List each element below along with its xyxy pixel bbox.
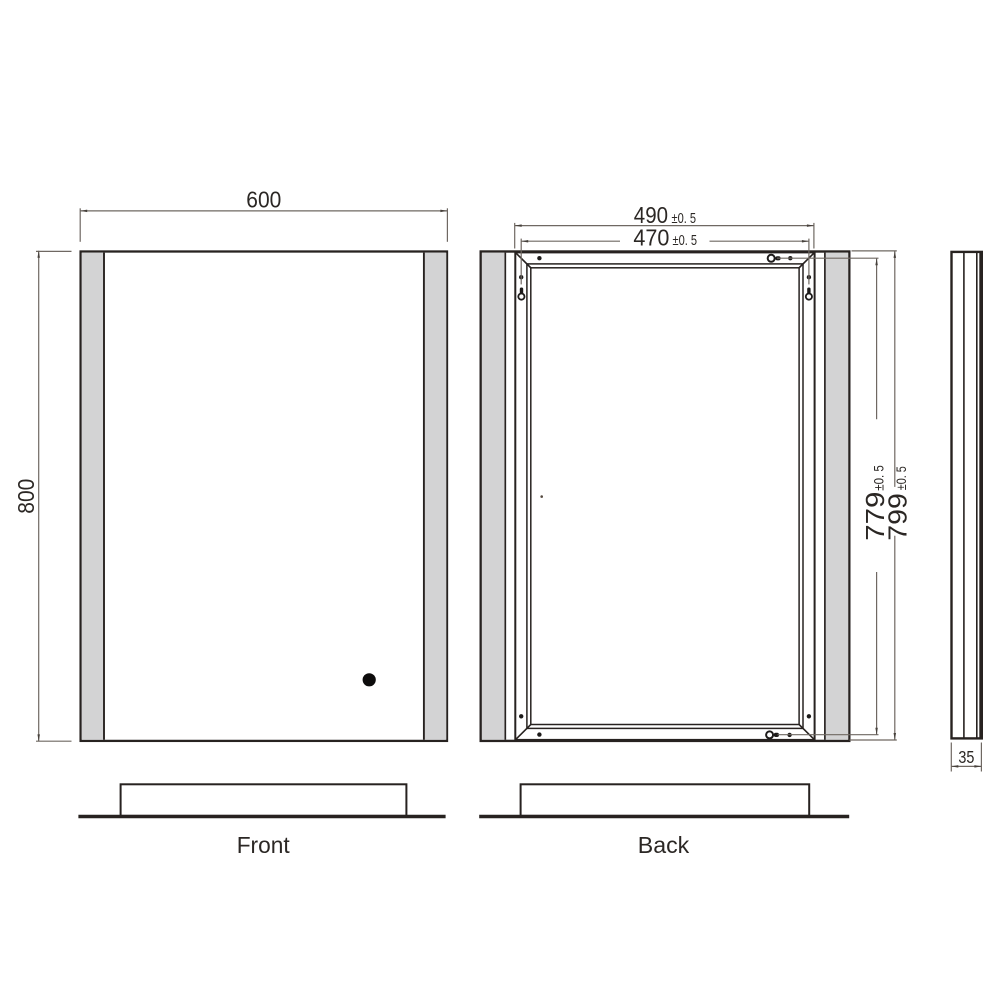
svg-text:600: 600 [246,187,281,213]
svg-text:±0. 5: ±0. 5 [673,233,698,249]
svg-text:470: 470 [633,225,669,251]
svg-text:35: 35 [958,747,974,767]
svg-text:Front: Front [237,832,291,858]
svg-text:800: 800 [13,479,39,514]
svg-text:±0. 5: ±0. 5 [893,466,909,490]
svg-text:±0. 5: ±0. 5 [871,465,887,491]
svg-text:±0. 5: ±0. 5 [672,211,697,227]
svg-text:Back: Back [638,832,690,858]
svg-text:799: 799 [882,493,912,541]
